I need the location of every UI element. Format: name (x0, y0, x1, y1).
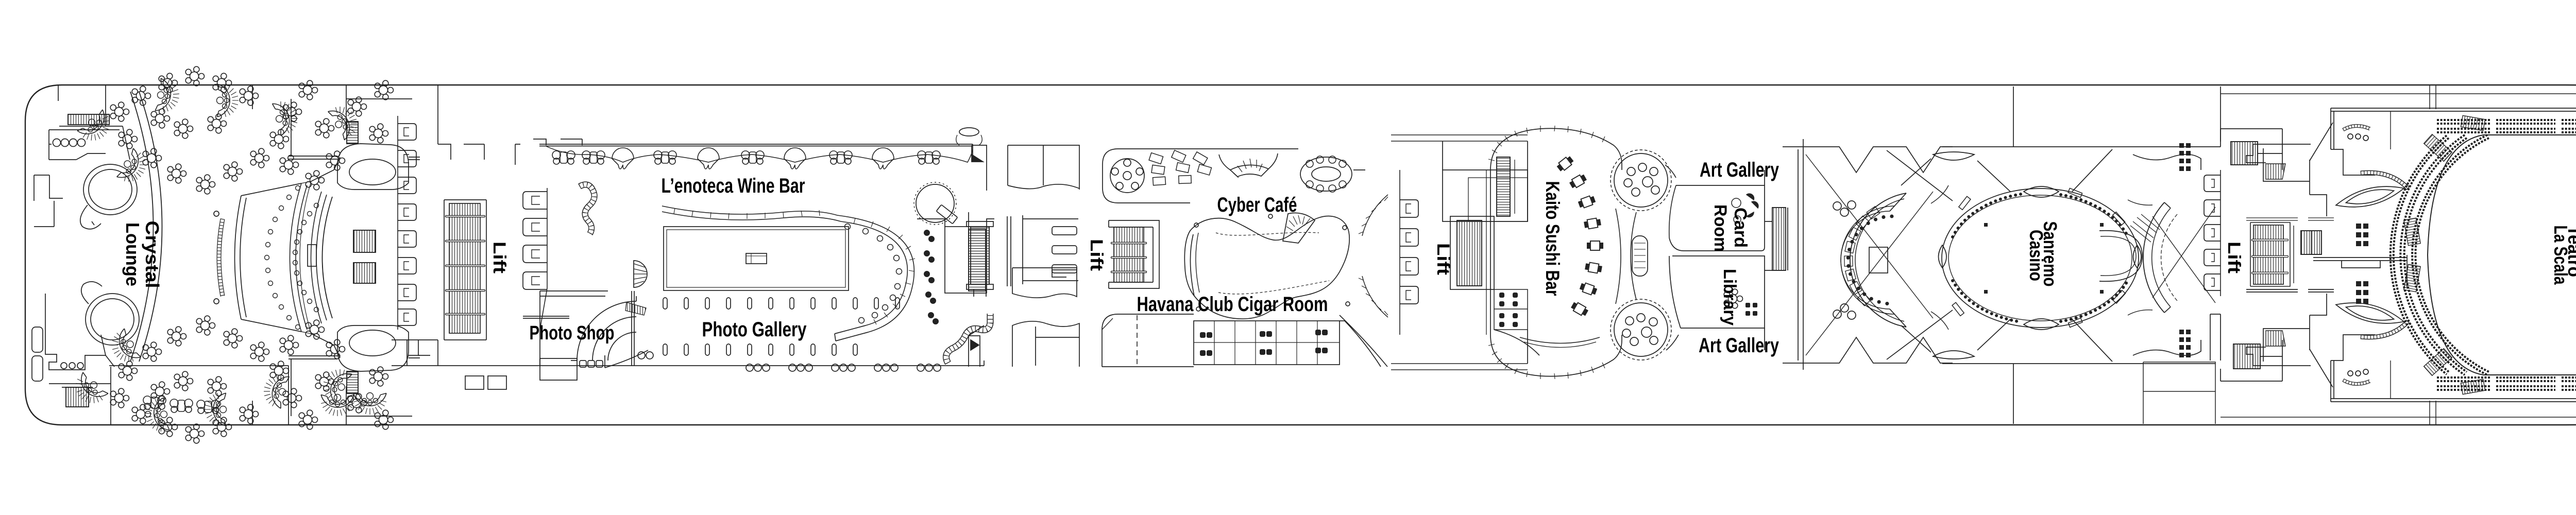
svg-text:Lift: Lift (1433, 243, 1453, 275)
svg-text:Photo Shop: Photo Shop (530, 322, 615, 344)
svg-text:Art Gallery: Art Gallery (1699, 334, 1780, 357)
svg-text:Cyber Café: Cyber Café (1217, 194, 1297, 216)
svg-text:Art Gallery: Art Gallery (1700, 159, 1780, 181)
svg-text:Room: Room (1710, 204, 1730, 252)
svg-text:Casino: Casino (2026, 230, 2047, 281)
svg-text:Havana Club Cigar Room: Havana Club Cigar Room (1137, 293, 1328, 316)
svg-text:Kaito Sushi Bar: Kaito Sushi Bar (1542, 181, 1563, 296)
svg-text:Lounge: Lounge (122, 222, 143, 286)
svg-text:Library: Library (1720, 269, 1739, 325)
svg-text:Lift: Lift (1087, 239, 1106, 271)
svg-text:Crystal: Crystal (142, 221, 163, 288)
svg-text:L’enoteca Wine Bar: L’enoteca Wine Bar (662, 175, 805, 197)
svg-text:Photo Gallery: Photo Gallery (702, 318, 807, 341)
svg-text:Lift: Lift (489, 242, 509, 273)
svg-text:Card: Card (1731, 208, 1750, 248)
svg-text:La Scala: La Scala (2550, 226, 2571, 285)
svg-text:Lift: Lift (2224, 242, 2244, 273)
